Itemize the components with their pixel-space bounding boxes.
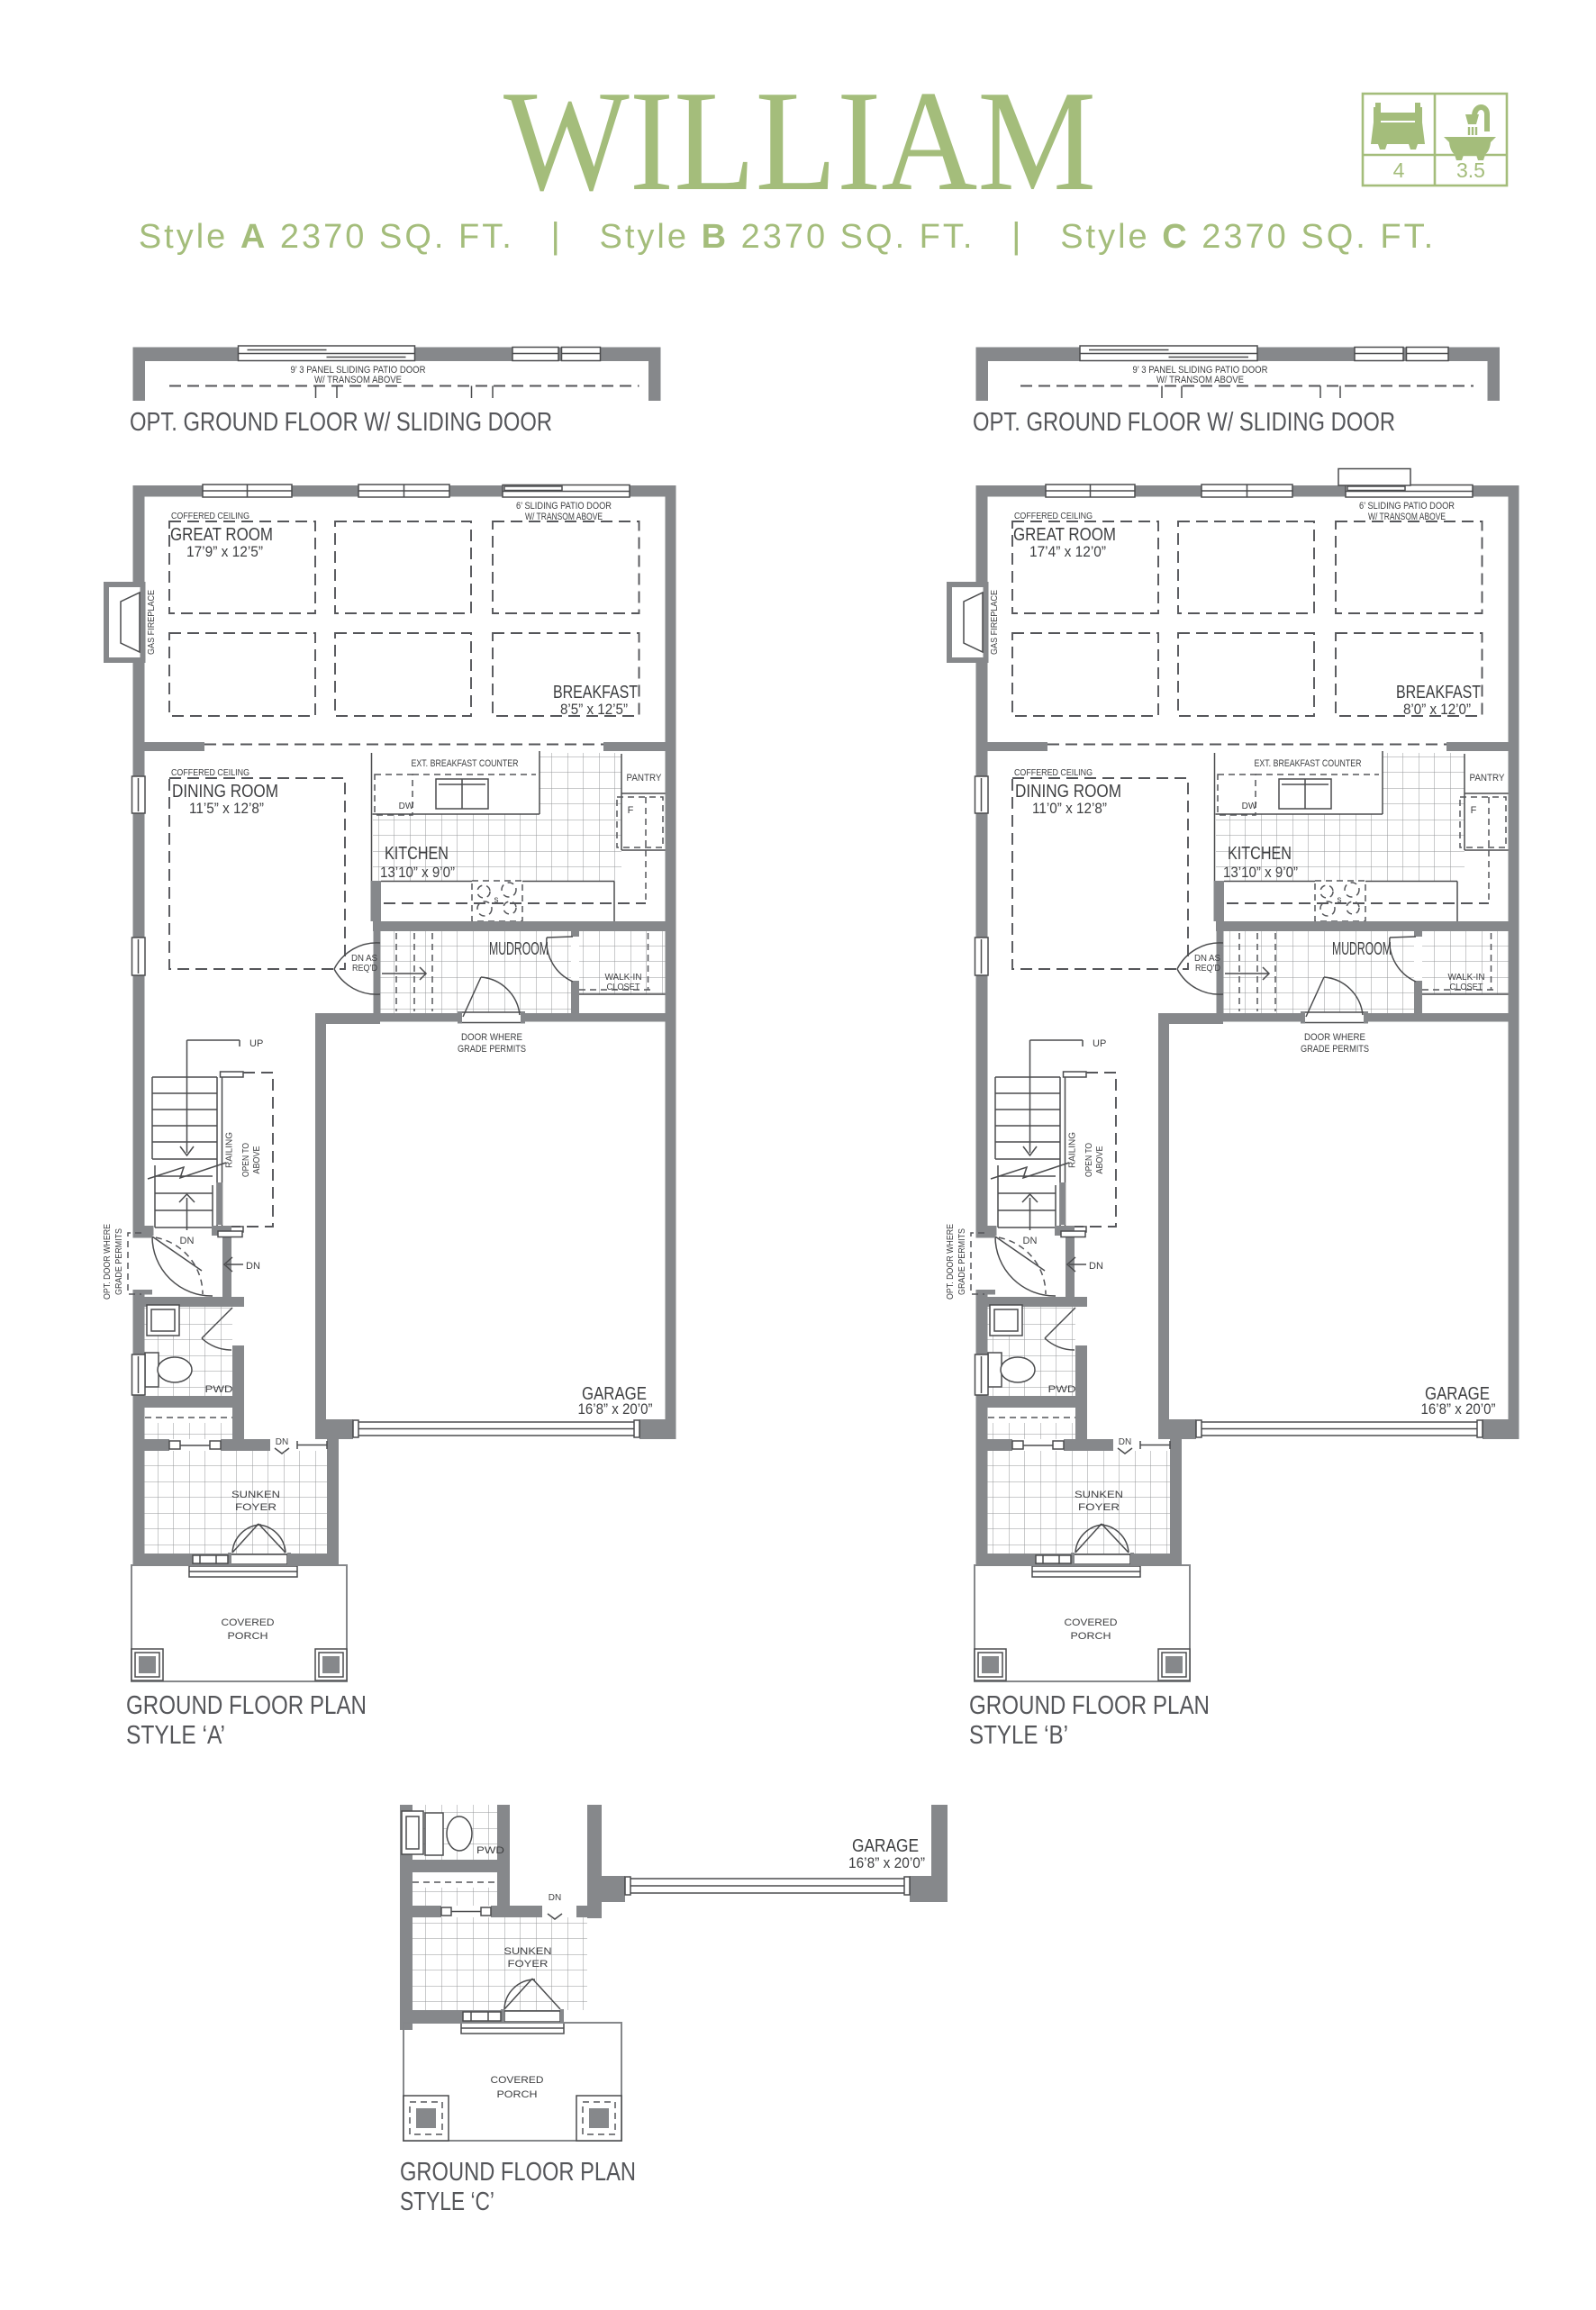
svg-text:STYLE ‘B’: STYLE ‘B’: [969, 1721, 1068, 1750]
svg-text:FOYER: FOYER: [508, 1959, 549, 1970]
svg-text:13’10” x 9’0”: 13’10” x 9’0”: [1223, 864, 1298, 881]
svg-text:DINING ROOM: DINING ROOM: [172, 782, 278, 802]
svg-text:13’10” x 9’0”: 13’10” x 9’0”: [380, 864, 455, 881]
svg-text:8’5” x 12’5”: 8’5” x 12’5”: [560, 701, 628, 718]
svg-text:F: F: [628, 805, 634, 816]
svg-text:DW: DW: [399, 802, 414, 811]
svg-text:DOOR WHERE: DOOR WHERE: [461, 1032, 522, 1043]
svg-text:STYLE ‘A’: STYLE ‘A’: [126, 1721, 225, 1750]
svg-text:CLOSET: CLOSET: [1450, 983, 1483, 992]
svg-text:GROUND FLOOR PLAN: GROUND FLOOR PLAN: [126, 1691, 367, 1720]
svg-text:DN: DN: [276, 1437, 288, 1447]
svg-text:PORCH: PORCH: [497, 2089, 538, 2100]
svg-text:COVERED: COVERED: [491, 2075, 544, 2086]
svg-text:ABOVE: ABOVE: [1095, 1146, 1105, 1173]
svg-text:8’0” x 12’0”: 8’0” x 12’0”: [1403, 701, 1471, 718]
svg-text:PWD: PWD: [1048, 1384, 1076, 1395]
svg-text:3.5: 3.5: [1456, 159, 1485, 182]
svg-text:COVERED: COVERED: [222, 1617, 275, 1628]
svg-text:6’ SLIDING PATIO DOOR: 6’ SLIDING PATIO DOOR: [1359, 501, 1455, 512]
svg-text:DINING ROOM: DINING ROOM: [1015, 782, 1121, 802]
svg-text:17’4” x 12’0”: 17’4” x 12’0”: [1029, 543, 1106, 560]
svg-text:COVERED: COVERED: [1065, 1617, 1118, 1628]
svg-text:OPEN TO: OPEN TO: [241, 1143, 251, 1177]
svg-text:16’8” x 20’0”: 16’8” x 20’0”: [848, 1854, 925, 1871]
svg-text:Style A 2370 SQ. FT. | Sty: Style A 2370 SQ. FT. | Style B 2370 SQ. …: [139, 216, 1436, 256]
svg-text:KITCHEN: KITCHEN: [385, 844, 449, 864]
svg-text:OPT. GROUND FLOOR W/ SLIDING D: OPT. GROUND FLOOR W/ SLIDING DOOR: [973, 408, 1395, 437]
svg-text:OPEN TO: OPEN TO: [1084, 1143, 1094, 1177]
svg-text:RAILING: RAILING: [1068, 1132, 1078, 1168]
svg-text:DN: DN: [246, 1261, 260, 1272]
svg-text:REQ’D: REQ’D: [1195, 964, 1220, 974]
svg-text:PWD: PWD: [205, 1384, 233, 1395]
svg-text:MUDROOM: MUDROOM: [489, 939, 549, 959]
svg-text:W/ TRANSOM ABOVE: W/ TRANSOM ABOVE: [1156, 375, 1244, 385]
svg-text:COFFERED CEILING: COFFERED CEILING: [1014, 768, 1093, 778]
svg-text:FOYER: FOYER: [1078, 1502, 1120, 1513]
svg-text:GREAT ROOM: GREAT ROOM: [170, 525, 273, 545]
svg-text:MUDROOM: MUDROOM: [1332, 939, 1392, 959]
svg-text:SUNKEN: SUNKEN: [504, 1946, 552, 1957]
svg-text:GREAT ROOM: GREAT ROOM: [1013, 525, 1116, 545]
svg-text:16’8” x 20’0”: 16’8” x 20’0”: [578, 1400, 653, 1418]
svg-text:ABOVE: ABOVE: [252, 1146, 262, 1173]
svg-text:OPT. DOOR WHERE: OPT. DOOR WHERE: [946, 1224, 956, 1300]
svg-text:PORCH: PORCH: [1071, 1631, 1111, 1642]
svg-text:OPT. GROUND FLOOR W/ SLIDING D: OPT. GROUND FLOOR W/ SLIDING DOOR: [130, 408, 552, 437]
svg-text:STYLE ‘C’: STYLE ‘C’: [400, 2188, 494, 2216]
svg-text:PANTRY: PANTRY: [1470, 773, 1506, 784]
svg-text:WILLIAM: WILLIAM: [503, 60, 1096, 221]
svg-text:PANTRY: PANTRY: [627, 773, 663, 784]
svg-text:DN AS: DN AS: [351, 954, 377, 964]
svg-text:DN: DN: [1023, 1236, 1038, 1246]
svg-text:REQ’D: REQ’D: [352, 964, 377, 974]
svg-text:BREAKFAST: BREAKFAST: [553, 683, 638, 702]
svg-text:GRADE PERMITS: GRADE PERMITS: [1301, 1044, 1369, 1055]
svg-text:GRADE PERMITS: GRADE PERMITS: [458, 1044, 526, 1055]
svg-text:COFFERED CEILING: COFFERED CEILING: [171, 768, 249, 778]
svg-text:GROUND FLOOR PLAN: GROUND FLOOR PLAN: [400, 2158, 636, 2187]
svg-text:DOOR WHERE: DOOR WHERE: [1304, 1032, 1365, 1043]
svg-text:F: F: [1471, 805, 1477, 816]
svg-text:16’8” x 20’0”: 16’8” x 20’0”: [1421, 1400, 1496, 1418]
svg-text:GROUND FLOOR PLAN: GROUND FLOOR PLAN: [969, 1691, 1210, 1720]
svg-text:DN: DN: [180, 1236, 195, 1246]
svg-text:FOYER: FOYER: [235, 1502, 277, 1513]
svg-text:11’0” x 12’8”: 11’0” x 12’8”: [1032, 800, 1107, 817]
svg-text:KITCHEN: KITCHEN: [1228, 844, 1292, 864]
svg-text:WALK-IN: WALK-IN: [605, 973, 642, 983]
svg-text:COFFERED CEILING: COFFERED CEILING: [171, 512, 249, 521]
svg-text:DN: DN: [1119, 1437, 1131, 1447]
svg-text:DN AS: DN AS: [1194, 954, 1220, 964]
svg-text:UP: UP: [249, 1038, 263, 1049]
svg-text:17’9” x 12’5”: 17’9” x 12’5”: [186, 543, 263, 560]
svg-text:UP: UP: [1093, 1038, 1106, 1049]
svg-text:OPT. DOOR WHERE: OPT. DOOR WHERE: [103, 1224, 113, 1300]
svg-text:GRADE PERMITS: GRADE PERMITS: [114, 1228, 124, 1295]
svg-text:11’5” x 12’8”: 11’5” x 12’8”: [189, 800, 264, 817]
svg-text:4: 4: [1393, 159, 1405, 182]
svg-text:DW: DW: [1242, 802, 1257, 811]
svg-text:GRADE PERMITS: GRADE PERMITS: [957, 1228, 967, 1295]
svg-text:SUNKEN: SUNKEN: [1075, 1490, 1123, 1500]
svg-text:W/ TRANSOM ABOVE: W/ TRANSOM ABOVE: [314, 375, 402, 385]
svg-text:RAILING: RAILING: [225, 1132, 235, 1168]
svg-text:GARAGE: GARAGE: [852, 1836, 919, 1856]
svg-text:EXT. BREAKFAST COUNTER: EXT. BREAKFAST COUNTER: [412, 758, 519, 769]
svg-text:EXT. BREAKFAST COUNTER: EXT. BREAKFAST COUNTER: [1255, 758, 1362, 769]
svg-text:6’ SLIDING PATIO DOOR: 6’ SLIDING PATIO DOOR: [516, 501, 612, 512]
svg-text:GAS FIREPLACE: GAS FIREPLACE: [990, 590, 1000, 655]
svg-text:GAS FIREPLACE: GAS FIREPLACE: [147, 590, 157, 655]
svg-text:CLOSET: CLOSET: [607, 983, 640, 992]
svg-text:WALK-IN: WALK-IN: [1448, 973, 1485, 983]
svg-text:DN: DN: [1089, 1261, 1103, 1272]
svg-text:COFFERED CEILING: COFFERED CEILING: [1014, 512, 1093, 521]
svg-text:SUNKEN: SUNKEN: [231, 1490, 280, 1500]
svg-text:DN: DN: [549, 1893, 561, 1903]
svg-text:BREAKFAST: BREAKFAST: [1396, 683, 1481, 702]
svg-text:PWD: PWD: [476, 1845, 504, 1856]
svg-text:PORCH: PORCH: [228, 1631, 268, 1642]
